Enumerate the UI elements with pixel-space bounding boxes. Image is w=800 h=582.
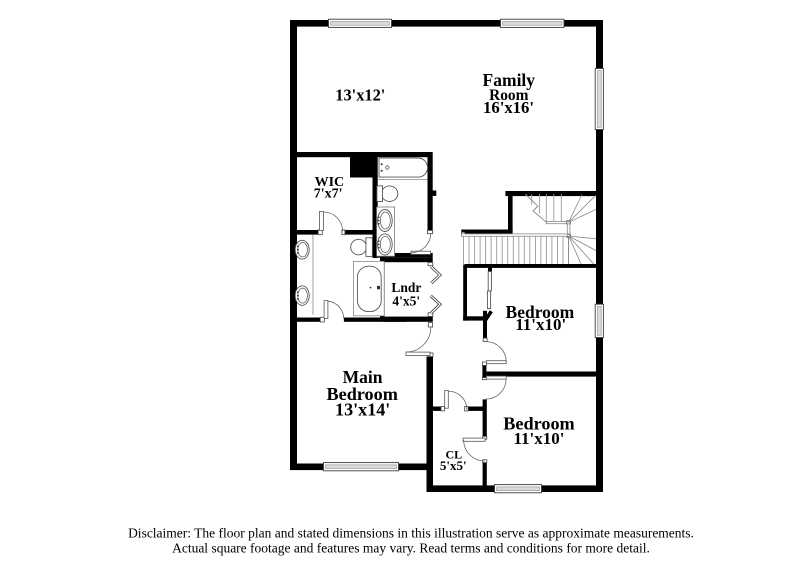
svg-text:11'x10': 11'x10' bbox=[513, 429, 564, 448]
svg-text:Actual square footage and feat: Actual square footage and features may v… bbox=[172, 541, 650, 556]
svg-text:7'x7': 7'x7' bbox=[314, 186, 343, 201]
svg-text:Disclaimer: The floor plan and: Disclaimer: The floor plan and stated di… bbox=[128, 526, 694, 541]
svg-text:13'x12': 13'x12' bbox=[335, 85, 385, 104]
svg-text:16'x16': 16'x16' bbox=[483, 98, 534, 117]
svg-text:5'x5': 5'x5' bbox=[440, 458, 467, 473]
svg-text:4'x5': 4'x5' bbox=[392, 293, 420, 308]
svg-text:13'x14': 13'x14' bbox=[335, 400, 390, 420]
svg-text:11'x10': 11'x10' bbox=[515, 315, 566, 334]
